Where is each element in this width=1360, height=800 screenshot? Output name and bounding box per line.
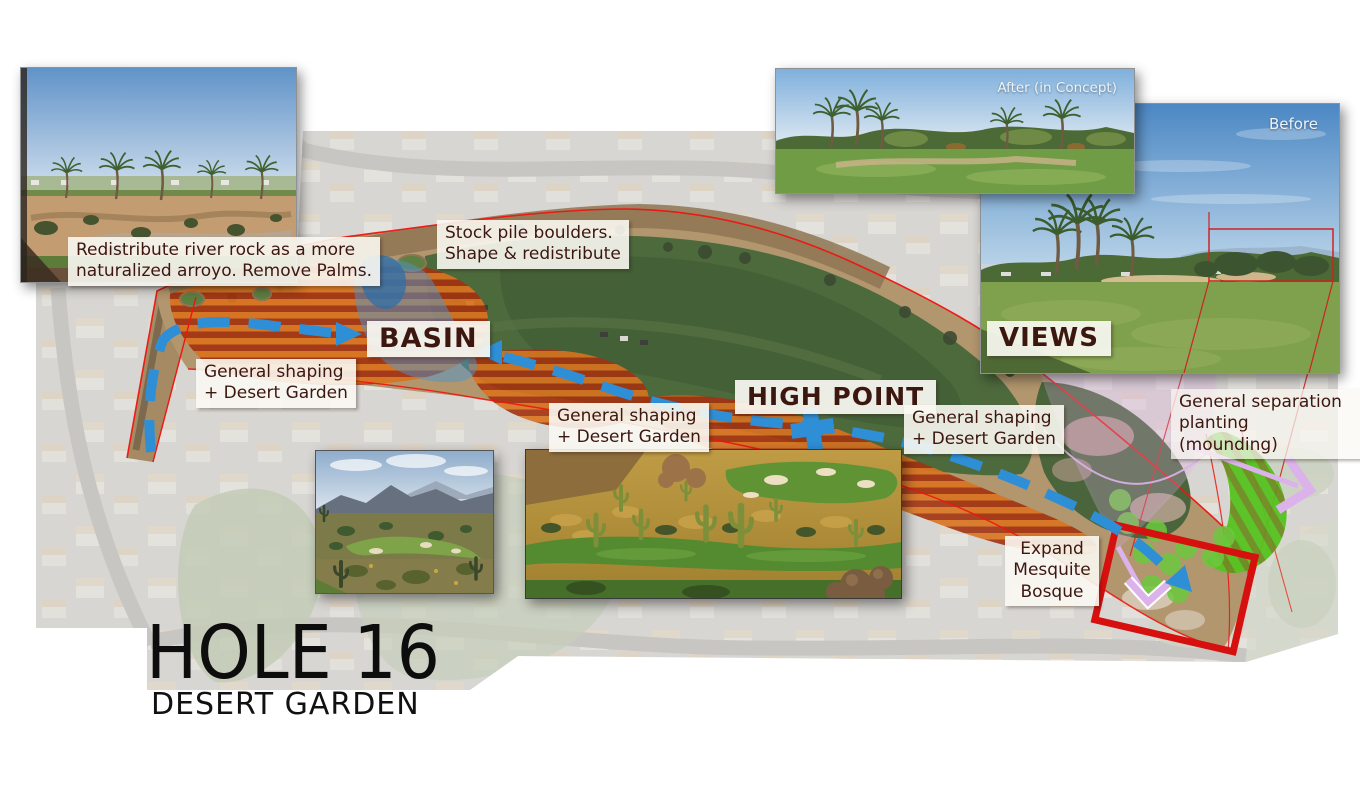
page-title: HOLE 16 — [146, 616, 440, 690]
basin-label: BASIN — [367, 321, 490, 357]
concept-plan-slide: Redistribute river rock as a more natura… — [0, 0, 1360, 800]
note-redistribute-river-rock: Redistribute river rock as a more natura… — [68, 237, 380, 286]
before-photo-caption: Before — [1261, 112, 1326, 137]
after-photo-caption: After (in Concept) — [989, 77, 1125, 100]
views-label: VIEWS — [987, 321, 1111, 356]
page-subtitle: DESERT GARDEN — [151, 687, 420, 722]
note-separation-planting: General separation planting (mounding) — [1171, 389, 1360, 459]
desert-garden-example-photo-2 — [525, 449, 902, 599]
note-general-shaping-2: General shaping + Desert Garden — [549, 403, 709, 452]
note-stockpile-boulders: Stock pile boulders. Shape & redistribut… — [437, 220, 629, 269]
note-general-shaping-3: General shaping + Desert Garden — [904, 405, 1064, 454]
sky — [21, 68, 296, 190]
desert-garden-example-photo-1 — [315, 450, 494, 594]
note-expand-mesquite-bosque: Expand Mesquite Bosque — [1005, 536, 1099, 606]
note-general-shaping-1: General shaping + Desert Garden — [196, 359, 356, 408]
